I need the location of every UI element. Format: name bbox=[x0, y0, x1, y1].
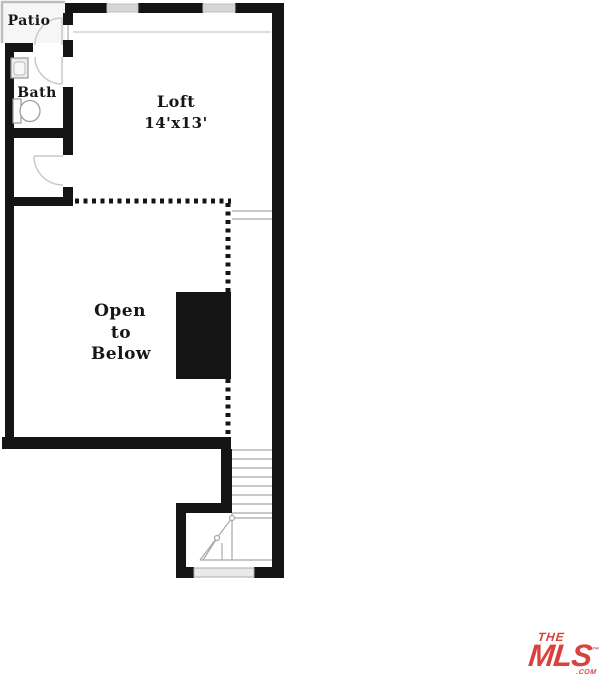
stair-west-wall bbox=[221, 449, 232, 506]
patio-bottom-wall bbox=[5, 43, 33, 52]
open-below-label-line3: Below bbox=[91, 344, 151, 364]
patio-loft-wall-lower bbox=[63, 40, 73, 57]
window-icon bbox=[203, 4, 235, 12]
hall-bottom-wall bbox=[5, 197, 73, 206]
open-below-label-line1: Open bbox=[94, 301, 146, 321]
hall-door-stub-top bbox=[63, 138, 73, 155]
newel-post bbox=[215, 536, 220, 541]
bath-label: Bath bbox=[17, 85, 57, 101]
chimney-mass bbox=[176, 292, 231, 379]
bath-door-swing bbox=[35, 57, 62, 84]
newel-post bbox=[230, 516, 235, 521]
patio-label: Patio bbox=[8, 13, 51, 29]
patio-loft-wall-upper bbox=[63, 13, 73, 25]
floorplan-page: Patio Bath Loft 14'x13' Open to Below TH… bbox=[0, 0, 605, 678]
open-below-bottom-wall bbox=[2, 437, 231, 449]
doors bbox=[34, 18, 63, 185]
alcove-left-wall bbox=[176, 503, 186, 578]
winder-line bbox=[203, 538, 217, 560]
top-wall-segment bbox=[65, 3, 107, 13]
right-wall bbox=[272, 3, 284, 578]
bottom-wall-left bbox=[176, 567, 194, 578]
logo-trademark: ™ bbox=[591, 647, 599, 654]
loft-dimensions-label: 14'x13' bbox=[144, 114, 207, 132]
window-icon bbox=[107, 4, 138, 12]
floor-plan-svg: Patio Bath Loft 14'x13' Open to Below bbox=[0, 0, 605, 678]
entry-threshold bbox=[194, 568, 254, 577]
sink-basin-icon bbox=[14, 62, 25, 75]
hall-door-stub-bottom bbox=[63, 187, 73, 197]
hall-door-swing bbox=[34, 156, 63, 185]
toilet-bowl-icon bbox=[20, 101, 40, 122]
bottom-wall-right bbox=[254, 567, 284, 578]
top-wall-segment bbox=[138, 3, 203, 13]
themls-logo: THE MLS™ .COM bbox=[526, 631, 600, 676]
logo-mls-text: MLS bbox=[527, 638, 593, 673]
bath-right-wall bbox=[63, 87, 73, 128]
loft-label: Loft bbox=[157, 92, 195, 111]
open-below-label-line2: to bbox=[111, 323, 131, 343]
bath-bottom-wall bbox=[5, 128, 73, 138]
